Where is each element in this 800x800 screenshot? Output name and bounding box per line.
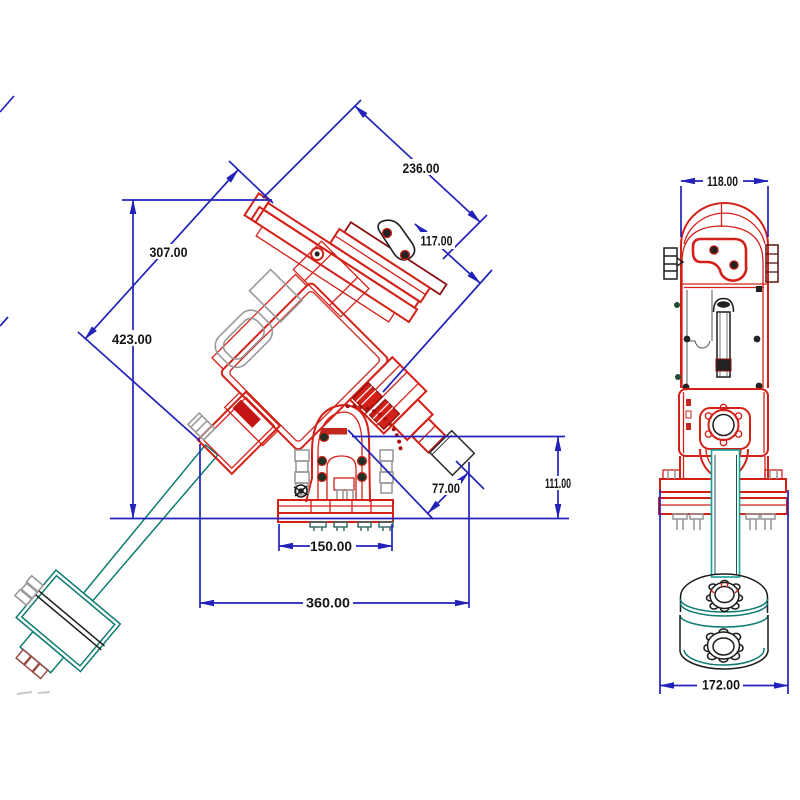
svg-text:150.00: 150.00 bbox=[310, 538, 352, 554]
svg-text:118.00: 118.00 bbox=[707, 173, 738, 189]
svg-text:236.00: 236.00 bbox=[403, 160, 440, 176]
svg-text:117.00: 117.00 bbox=[421, 233, 453, 249]
svg-text:307.00: 307.00 bbox=[150, 244, 188, 260]
svg-text:360.00: 360.00 bbox=[306, 595, 350, 611]
svg-text:423.00: 423.00 bbox=[112, 331, 152, 347]
svg-text:172.00: 172.00 bbox=[702, 677, 740, 693]
svg-text:111.00: 111.00 bbox=[545, 475, 571, 491]
svg-text:77.00: 77.00 bbox=[432, 480, 460, 496]
